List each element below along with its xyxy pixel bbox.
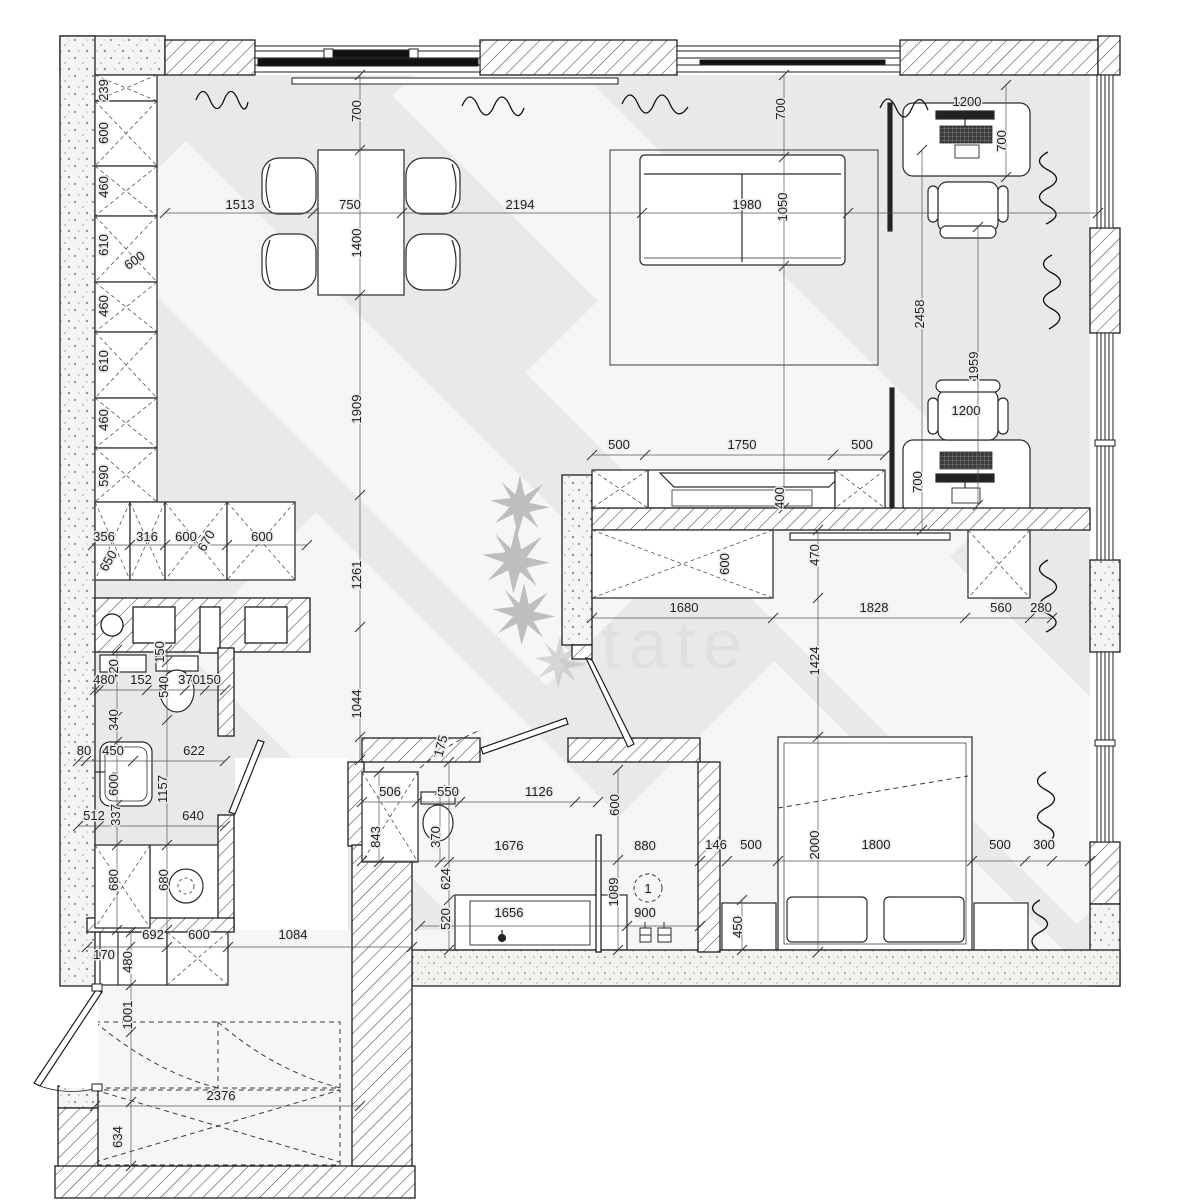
wall-hall-right [352,845,412,1166]
printer-icon [952,488,980,503]
dim-label: 340 [106,709,121,731]
dim-label: 370 [428,826,443,848]
mouse-tray [955,145,979,158]
dim-label: 1676 [495,838,524,853]
dim-label: 470 [807,544,822,566]
dim-label: 680 [106,869,121,891]
dim-label: 843 [368,826,383,848]
tv-console [648,470,843,508]
dim-label: 450 [102,743,124,758]
wall-living-bedroom [565,508,1090,530]
window-right-1 [1097,75,1113,228]
dim-label: 1 [644,881,651,896]
wall-right-1 [1090,228,1120,333]
chair [262,234,316,290]
dim-label: 1959 [966,352,981,381]
dim-label: 700 [994,130,1009,152]
wall-bath2-bedroom [698,762,720,952]
sliding-door-bar [333,50,409,57]
dim-label: 1050 [775,193,790,222]
wall-top-1 [165,40,255,75]
wall-top-right-corner [1098,36,1120,75]
dim-label: 152 [130,672,152,687]
pillow [884,897,964,942]
wall-bottom-bedroom [412,950,1120,986]
dim-label: 1261 [349,561,364,590]
wall-bath1-right-b [218,815,234,930]
wall-bath2-top-b [568,738,700,762]
dim-label: 170 [93,947,115,962]
wall-right-3 [1090,842,1120,904]
dim-label: 600 [106,774,121,796]
balcony-rail [292,78,618,84]
window-sash [700,60,885,64]
dim-label: 460 [96,409,111,431]
dim-label: 590 [96,465,111,487]
dim-label: 1089 [606,878,621,907]
dim-label: 1980 [733,197,762,212]
dim-label: 337 [108,804,123,826]
window-top-a [255,46,480,72]
wall-left-stub2 [58,1108,98,1168]
dim-label: 500 [989,837,1011,852]
dim-label: 512 [83,808,105,823]
dim-label: 1157 [155,775,170,803]
dim-label: 520 [438,908,453,930]
wall-bath1-right-a [218,648,234,736]
dim-label: 1084 [279,927,308,942]
dim-label: 146 [705,837,727,852]
wall-board [888,103,892,231]
dim-label: 1400 [349,229,364,258]
dim-label: 634 [110,1126,125,1148]
floor-plan-page: state [0,0,1183,1200]
dim-label: 680 [156,869,171,891]
dim-label: 150 [152,641,167,663]
wall-top-2 [480,40,677,75]
shaft-wall [95,598,310,653]
dim-label: 1656 [495,905,524,920]
duct [245,607,287,643]
dim-label: 610 [96,234,111,256]
dim-label: 600 [607,794,622,816]
door-jamb [572,645,592,659]
dim-label: 640 [182,808,204,823]
sink-basin [470,901,590,945]
dim-label: 700 [773,98,788,120]
dim-label: 692 [142,927,164,942]
duct [133,607,175,643]
dim-label: 370 [178,672,200,687]
dim-label: 2458 [912,300,927,329]
dim-label: 600 [175,529,197,544]
sliding-door-bar [258,59,478,66]
dim-label: 1424 [807,647,822,676]
dim-label: 1828 [860,600,889,615]
pillar [562,475,592,645]
dim-label: 700 [910,471,925,493]
wall-bath2-top-a [362,738,480,762]
dining-table [318,150,404,295]
desk-chair [928,182,1008,238]
wall-left [60,36,95,986]
floor-plan: state [0,0,1183,1200]
dim-label: 506 [379,784,401,799]
dim-label: 624 [438,868,453,890]
dim-label: 460 [96,295,111,317]
dim-label: 1680 [670,600,699,615]
window-top-b [677,46,900,72]
duct [200,607,220,653]
dim-label: 356 [93,529,115,544]
dim-label: 1800 [862,837,891,852]
wall-bottom-hall [55,1166,415,1198]
dim-label: 1200 [953,94,982,109]
wall-top-3 [900,40,1098,75]
dim-label: 550 [437,784,459,799]
dim-label: 300 [1033,837,1055,852]
wall-right-2 [1090,560,1120,652]
dim-label: 1126 [525,784,553,799]
dim-label: 2376 [207,1088,236,1103]
wall-board [890,388,894,518]
dim-label: 600 [188,927,210,942]
dim-label: 610 [96,350,111,372]
dim-label: 500 [608,437,630,452]
dim-label: 600 [251,529,273,544]
glass-partition [596,835,601,952]
chair [406,158,460,214]
keyboard-icon [940,126,992,143]
dim-label: 480 [93,672,115,687]
dim-label: 560 [990,600,1012,615]
dim-label: 239 [96,79,111,101]
dim-label: 880 [634,838,656,853]
dim-label: 2194 [506,197,535,212]
dim-label: 80 [77,743,91,758]
dim-label: 460 [96,176,111,198]
dim-label: 450 [730,916,745,938]
dim-label: 500 [740,837,762,852]
dim-label: 600 [717,553,732,575]
dim-label: 1001 [120,1001,135,1030]
chair [406,234,460,290]
dim-label: 316 [136,529,158,544]
dim-label: 700 [349,100,364,122]
dim-label: 150 [199,672,221,687]
chair [262,158,316,214]
window-right-2 [1095,333,1115,560]
dim-label: 2000 [807,831,822,860]
dim-label: 1750 [728,437,757,452]
dim-label: 480 [120,951,135,973]
pipe-icon [101,614,123,636]
keyboard-icon [940,452,992,469]
dim-label: 622 [183,743,205,758]
dim-label: 1044 [349,690,364,719]
dim-label: 1909 [349,395,364,424]
dim-label: 500 [851,437,873,452]
dim-label: 900 [634,905,656,920]
dim-label: 540 [156,676,171,698]
dim-label: 600 [96,122,111,144]
dim-label: 280 [1030,600,1052,615]
dim-label: 750 [339,197,361,212]
dim-label: 400 [772,487,787,509]
dim-label: 1513 [226,197,255,212]
nightstand-right [974,903,1028,950]
pillow [787,897,867,942]
monitor-icon [936,111,994,119]
dim-label: 1200 [952,403,981,418]
monitor-icon [936,474,994,482]
window-right-3 [1095,652,1115,842]
